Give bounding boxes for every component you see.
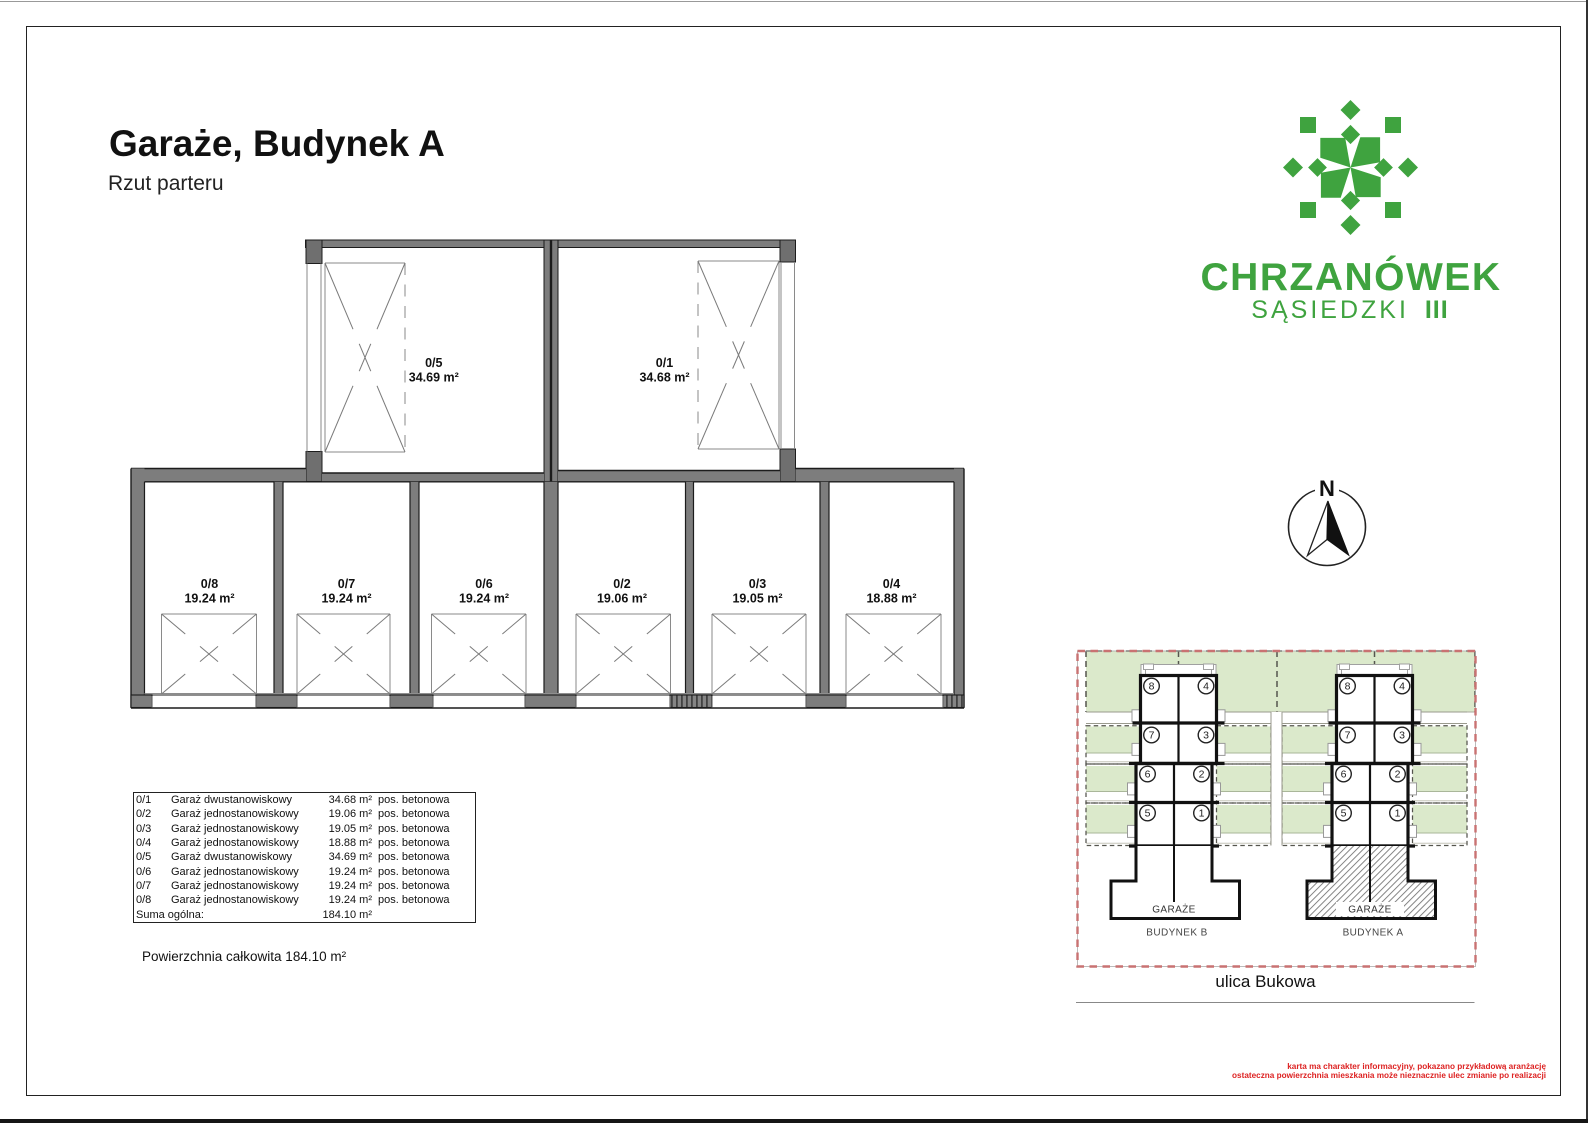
svg-text:19.06 m²: 19.06 m² bbox=[597, 592, 647, 606]
svg-text:0/5: 0/5 bbox=[425, 356, 442, 370]
svg-text:4: 4 bbox=[1203, 681, 1209, 693]
svg-text:0/4: 0/4 bbox=[883, 577, 900, 591]
svg-text:8: 8 bbox=[1149, 681, 1155, 693]
svg-text:19.05 m²: 19.05 m² bbox=[732, 592, 782, 606]
svg-text:2: 2 bbox=[1199, 769, 1205, 781]
svg-text:0/7: 0/7 bbox=[338, 577, 355, 591]
svg-text:0/2: 0/2 bbox=[613, 577, 630, 591]
svg-text:5: 5 bbox=[1145, 808, 1151, 820]
svg-text:34.68 m²: 34.68 m² bbox=[639, 371, 689, 385]
svg-text:8: 8 bbox=[1345, 681, 1351, 693]
svg-text:1: 1 bbox=[1199, 808, 1205, 820]
svg-text:6: 6 bbox=[1341, 769, 1347, 781]
svg-text:6: 6 bbox=[1145, 769, 1151, 781]
svg-text:ulica Bukowa: ulica Bukowa bbox=[1215, 972, 1316, 991]
svg-text:BUDYNEK A: BUDYNEK A bbox=[1343, 928, 1404, 939]
svg-text:19.24 m²: 19.24 m² bbox=[321, 592, 371, 606]
svg-text:19.24 m²: 19.24 m² bbox=[459, 592, 509, 606]
svg-text:N: N bbox=[1319, 476, 1335, 501]
svg-text:0/3: 0/3 bbox=[749, 577, 766, 591]
svg-text:18.88 m²: 18.88 m² bbox=[866, 592, 916, 606]
svg-text:7: 7 bbox=[1345, 730, 1351, 742]
svg-text:3: 3 bbox=[1399, 730, 1405, 742]
svg-text:0/6: 0/6 bbox=[475, 577, 492, 591]
svg-text:19.24 m²: 19.24 m² bbox=[184, 592, 234, 606]
svg-text:5: 5 bbox=[1341, 808, 1347, 820]
svg-text:3: 3 bbox=[1203, 730, 1209, 742]
svg-text:GARAŻE: GARAŻE bbox=[1348, 903, 1392, 916]
svg-text:0/1: 0/1 bbox=[656, 356, 673, 370]
svg-text:GARAŻE: GARAŻE bbox=[1152, 903, 1196, 916]
svg-text:34.69 m²: 34.69 m² bbox=[409, 371, 459, 385]
svg-text:7: 7 bbox=[1149, 730, 1155, 742]
svg-text:1: 1 bbox=[1395, 808, 1401, 820]
svg-text:0/8: 0/8 bbox=[201, 577, 218, 591]
svg-text:BUDYNEK B: BUDYNEK B bbox=[1146, 928, 1207, 939]
svg-text:4: 4 bbox=[1399, 681, 1405, 693]
svg-text:2: 2 bbox=[1395, 769, 1401, 781]
